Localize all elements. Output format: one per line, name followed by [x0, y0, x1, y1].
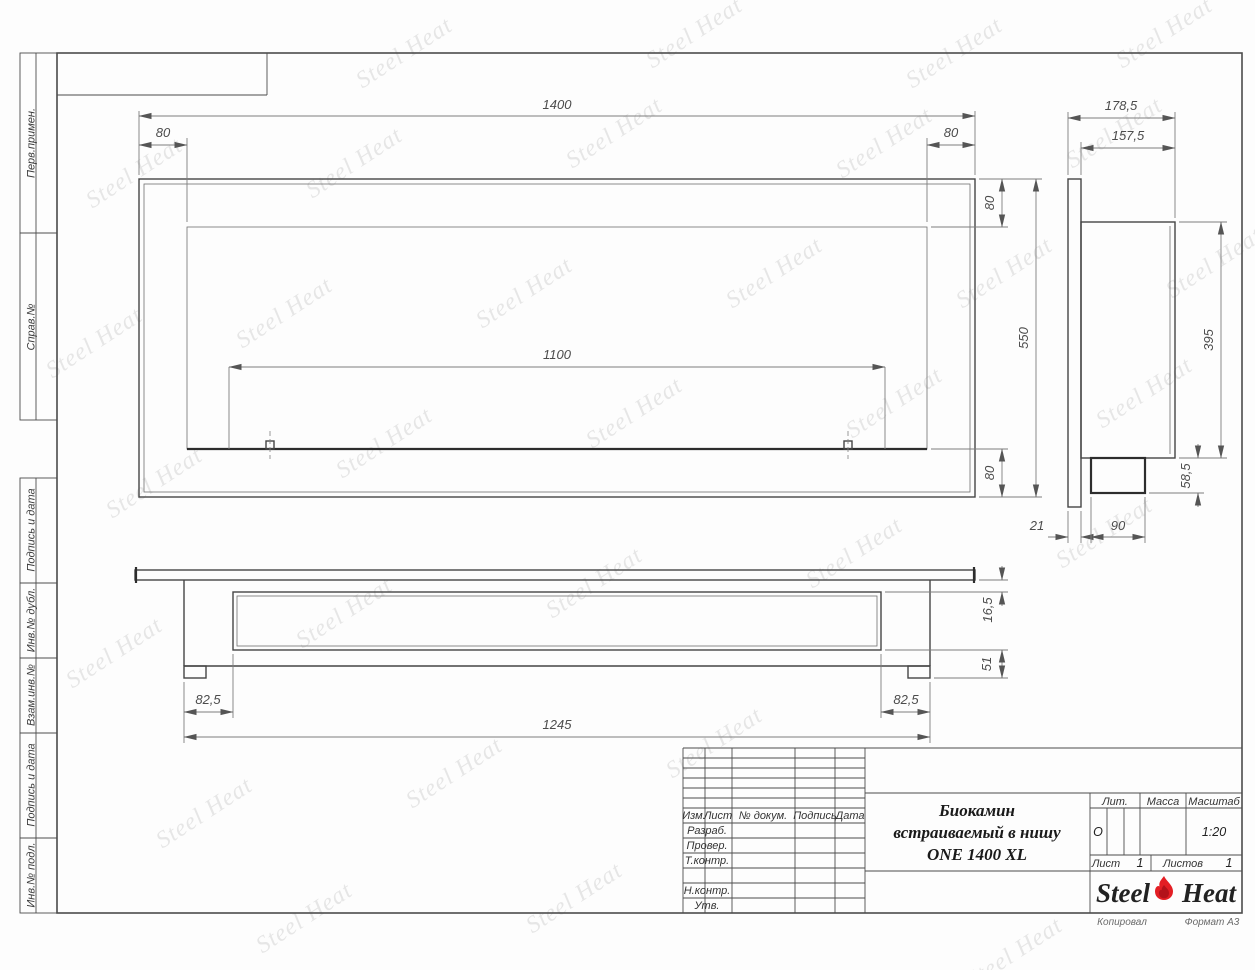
doc-title-line-1: Биокамин: [938, 801, 1015, 820]
drawing-canvas: Перв.примен. Справ.№ Подпись и дата Инв.…: [0, 0, 1255, 970]
dim-front-opening: 1100: [543, 347, 572, 362]
lit-value: О: [1093, 825, 1103, 839]
side-view-dimensions: 178,5 157,5 395 58,5 21: [1029, 98, 1227, 543]
dim-front-bottom-inset: 80: [982, 465, 997, 480]
sheets-total: 1: [1226, 856, 1233, 870]
row-label-tcontrol: Т.контр.: [685, 855, 729, 867]
col-header-doc: № докум.: [739, 810, 787, 822]
margin-label-inv-podl: Инв.№ подл.: [26, 842, 38, 907]
margin-label-inv-dubl: Инв.№ дубл.: [26, 588, 38, 653]
margin-label-podpis-data-2: Подпись и дата: [26, 743, 38, 826]
margin-label-vzam-inv: Взам.инв.№: [26, 664, 38, 726]
lit-label: Лит.: [1101, 796, 1128, 808]
dim-bottom-length: 1245: [543, 717, 573, 732]
row-label-developed: Разраб.: [687, 825, 727, 837]
drawing-sheet: Steel Heat Steel Heat Steel Heat Steel H…: [0, 0, 1255, 970]
dim-bottom-left-margin: 82,5: [195, 692, 221, 707]
sheet-frame: [57, 53, 1242, 913]
sheets-label: Листов: [1162, 858, 1203, 870]
format-label: Формат А3: [1185, 917, 1240, 928]
scale-value: 1:20: [1202, 825, 1226, 839]
dim-side-box-height: 58,5: [1178, 463, 1193, 489]
dim-front-right-inset: 80: [944, 125, 959, 140]
doc-title-line-3: ONE 1400 XL: [927, 845, 1027, 864]
dim-bottom-edge-inset: 16,5: [980, 597, 995, 623]
col-header-date: Дата: [833, 810, 864, 822]
col-header-izm: Изм.: [682, 810, 705, 822]
dim-front-left-inset: 80: [156, 125, 171, 140]
dim-side-depth-body: 157,5: [1112, 128, 1145, 143]
copied-label: Копировал: [1097, 917, 1147, 928]
row-label-ncontrol: Н.контр.: [684, 885, 731, 897]
dim-side-flange-thickness: 21: [1029, 518, 1044, 533]
row-label-approved: Утв.: [694, 900, 720, 912]
scale-label: Масштаб: [1188, 796, 1240, 808]
col-header-list: Лист: [703, 810, 732, 822]
col-header-sign: Подпись: [793, 810, 837, 822]
sheet-label: Лист: [1091, 858, 1120, 870]
margin-label-perv-primen: Перв.примен.: [26, 108, 38, 178]
margin-label-podpis-data-1: Подпись и дата: [26, 488, 38, 571]
front-view: 1400 80 80 1100 80 550 80: [139, 97, 1042, 497]
dim-front-top-inset: 80: [982, 195, 997, 210]
title-block: Изм. Лист № докум. Подпись Дата Разраб. …: [682, 748, 1242, 913]
dim-bottom-base-height: 51: [979, 657, 994, 671]
sheet-number: 1: [1137, 856, 1144, 870]
mass-label: Масса: [1147, 796, 1180, 808]
dim-side-body-height: 395: [1201, 328, 1216, 350]
logo-text-steel: Steel: [1096, 878, 1150, 908]
bottom-view: 16,5 51 82,5 82,5 1245: [135, 566, 1008, 743]
margin-label-sprav-no: Справ.№: [26, 303, 38, 350]
front-view-dimensions: 1400 80 80 1100 80 550 80: [139, 97, 1042, 497]
dim-front-height: 550: [1016, 326, 1031, 348]
footer-labels: Копировал Формат А3: [1097, 917, 1240, 928]
row-label-checked: Провер.: [687, 840, 728, 852]
dim-bottom-right-margin: 82,5: [893, 692, 919, 707]
logo-text-heat: Heat: [1181, 878, 1237, 908]
side-view: 178,5 157,5 395 58,5 21: [1029, 98, 1227, 543]
doc-title-line-2: встраиваемый в нишу: [893, 823, 1061, 842]
dim-side-box-width: 90: [1111, 518, 1126, 533]
steelheat-logo: Steel Heat: [1096, 876, 1237, 908]
dim-side-depth-total: 178,5: [1105, 98, 1138, 113]
flame-icon: [1155, 876, 1173, 900]
margin-column: Перв.примен. Справ.№ Подпись и дата Инв.…: [20, 53, 57, 913]
dim-front-width: 1400: [543, 97, 573, 112]
